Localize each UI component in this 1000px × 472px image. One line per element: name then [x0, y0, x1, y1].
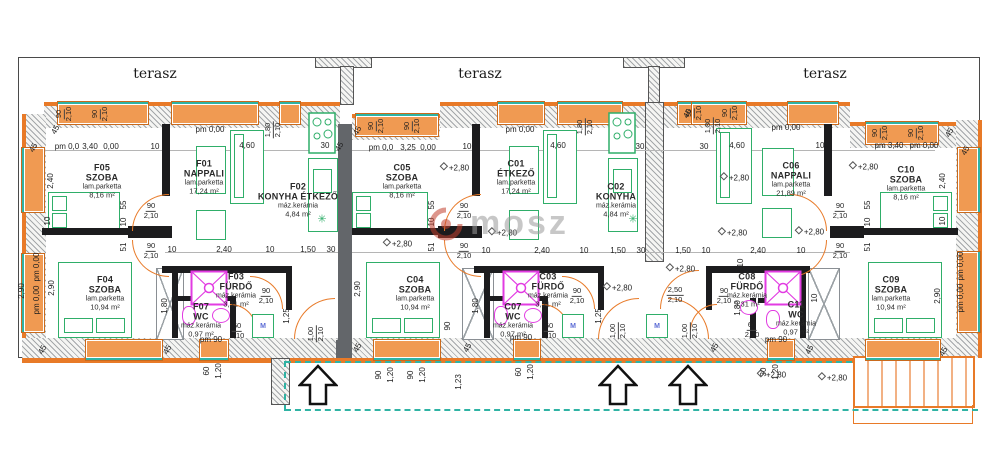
- dim-fraction: 1,002,10: [681, 323, 699, 340]
- window: [514, 340, 540, 360]
- party-wall: [338, 124, 352, 358]
- dim-label: 0,00: [103, 143, 119, 151]
- room-finish: máz.kerámia: [596, 203, 636, 210]
- dim-bottom: 2,10: [457, 252, 472, 261]
- coffee-table: [196, 210, 226, 240]
- dim-fraction: 1,802,10: [576, 119, 594, 136]
- chimney-stem: [648, 66, 660, 105]
- walkway-edge: [285, 409, 978, 411]
- room-code: C09: [872, 275, 911, 285]
- room-label-c11: C11WCmáz.kerámia0,97 m²: [776, 300, 816, 337]
- entrance-arrow-icon: [598, 364, 638, 406]
- dim-fraction: 602,10: [230, 322, 245, 340]
- room-code: C04: [396, 275, 435, 285]
- dim-label: 2,40: [939, 173, 947, 189]
- dim-fraction: 902,10: [457, 242, 472, 260]
- dim-label: pm 0,00: [33, 286, 41, 315]
- bed-pillow: [96, 318, 125, 333]
- walkway-edge: [284, 361, 288, 411]
- dim-fraction: 2,502,10: [667, 286, 684, 304]
- dim-label: 10: [939, 217, 947, 226]
- partition-wall: [162, 124, 170, 196]
- bed-pillow: [906, 318, 935, 333]
- dim-fraction: 902,10: [833, 202, 848, 220]
- room-area: 4,84 m²: [258, 210, 338, 219]
- room-finish: máz.kerámia: [181, 323, 221, 330]
- room-code: F02: [258, 182, 338, 192]
- dim-bottom: 2,10: [881, 126, 890, 141]
- dim-fraction: 602,10: [745, 321, 760, 339]
- dim-label: pm 0,00: [910, 142, 939, 150]
- dim-label: pm 0,00: [957, 252, 965, 281]
- washing-machine-label: M: [260, 323, 266, 330]
- door-jamb: [830, 226, 864, 238]
- window: [86, 340, 162, 360]
- dim-fraction: 1,002,10: [307, 326, 325, 343]
- dim-fraction: 902,10: [144, 242, 159, 260]
- partition-wall: [824, 124, 832, 196]
- dim-bottom: 2,10: [695, 106, 704, 121]
- dim-label: 10: [864, 218, 872, 227]
- dim-label: 2,90: [934, 288, 942, 304]
- partition-wall: [472, 124, 480, 196]
- coffee-table: [762, 208, 792, 238]
- walkway-edge: [285, 361, 852, 363]
- party-wall-hatched: [645, 102, 664, 262]
- dim-label: 10: [120, 218, 128, 227]
- level-mark: +2,80: [719, 228, 747, 237]
- dim-label: 10: [811, 294, 819, 303]
- dim-label: 60: [515, 368, 523, 377]
- dim-label: 3,25: [400, 144, 416, 152]
- level-mark: +2,80: [721, 173, 749, 182]
- room-name: SZOBA: [396, 285, 435, 295]
- terrace-label: terasz: [803, 66, 847, 82]
- entrance-arrow-icon: [298, 364, 338, 406]
- dim-label: 1,20: [387, 367, 395, 383]
- dim-label: 1,20: [419, 367, 427, 383]
- floor-plan-canvas: ✳ ✳ M M M mosz teraszteras: [0, 0, 1000, 472]
- dim-label: 4,60: [239, 142, 255, 150]
- sofa: [716, 128, 752, 204]
- room-area: 8,16 m²: [83, 191, 122, 200]
- dim-fraction: 902,10: [403, 119, 421, 134]
- dim-label: 1,50: [610, 247, 626, 255]
- dim-bottom: 2,10: [570, 297, 585, 306]
- level-mark: +2,80: [441, 163, 469, 172]
- room-finish: lam.parketta: [396, 296, 435, 303]
- washing-machine-label: M: [570, 323, 576, 330]
- dim-fraction: 902,10: [457, 202, 472, 220]
- dim-label: 10: [428, 218, 436, 227]
- dim-bottom: 2,10: [714, 119, 723, 134]
- room-label-c05: C05SZOBAlam.parketta8,16 m²: [383, 163, 422, 200]
- bed-pillow: [933, 196, 948, 211]
- dim-label: 1,50: [300, 246, 316, 254]
- dim-fraction: 1,802,10: [704, 118, 722, 135]
- dim-label: 4,60: [729, 142, 745, 150]
- dim-bottom: 2,10: [731, 106, 740, 121]
- dim-label: 1,80: [161, 298, 169, 314]
- room-area: 8,16 m²: [887, 193, 926, 202]
- room-finish: lam.parketta: [887, 186, 926, 193]
- dim-label: 51: [120, 243, 128, 252]
- room-label-f05: F05SZOBAlam.parketta8,16 m²: [83, 163, 122, 200]
- level-mark: +2,80: [758, 370, 786, 379]
- dim-label: 51: [864, 243, 872, 252]
- room-label-c06: C06NAPPALIlam.parketta21,89 m²: [771, 161, 811, 198]
- chimney-stem: [340, 66, 354, 105]
- dim-bottom: 2,10: [717, 297, 732, 306]
- dim-label: pm 90: [765, 336, 787, 344]
- dim-label: 2,40: [750, 247, 766, 255]
- dim-label: 1,20: [527, 364, 535, 380]
- partition-wall: [352, 228, 440, 235]
- dim-bottom: 2,10: [317, 327, 326, 342]
- dim-label: 10: [580, 247, 589, 255]
- dim-label: pm 0,00: [506, 126, 535, 134]
- dim-bottom: 2,10: [542, 332, 557, 341]
- dim-label: pm 0,00: [196, 126, 225, 134]
- room-name: NAPPALI: [184, 169, 224, 179]
- bed-pillow: [64, 318, 93, 333]
- room-name: KONYHA ÉTKEZŐ: [258, 192, 338, 202]
- room-label-c10: C10SZOBAlam.parketta8,16 m²: [887, 165, 926, 202]
- dim-bottom: 2,10: [65, 107, 74, 122]
- dim-label: 4,60: [550, 142, 566, 150]
- level-mark: +2,80: [489, 228, 517, 237]
- room-finish: lam.parketta: [497, 180, 536, 187]
- washing-machine: M: [646, 314, 668, 338]
- terrace-label: terasz: [458, 66, 502, 82]
- dim-label: 1,80: [734, 300, 742, 316]
- dim-label: 90: [444, 322, 452, 331]
- room-label-f03: F03FÜRDŐmáz.kerámia3,31 m²: [216, 272, 256, 309]
- dim-label: pm 0,0: [55, 143, 79, 151]
- dim-label: 10: [482, 247, 491, 255]
- room-name: FÜRDŐ: [528, 282, 568, 292]
- dim-bottom: 2,10: [457, 212, 472, 221]
- staircase-landing: [853, 405, 973, 424]
- room-name: SZOBA: [872, 285, 911, 295]
- bed-pillow: [874, 318, 903, 333]
- dim-fraction: 1,802,10: [264, 122, 282, 139]
- room-area: 3,31 m²: [216, 300, 256, 309]
- dim-label: 90: [375, 371, 383, 380]
- room-finish: máz.kerámia: [258, 203, 338, 210]
- dim-label: 2,90: [48, 280, 56, 296]
- room-finish: lam.parketta: [872, 296, 911, 303]
- dim-fraction: 902,10: [259, 287, 274, 305]
- room-code: F03: [216, 272, 256, 282]
- dim-bottom: 2,10: [259, 297, 274, 306]
- dim-label: 0,00: [420, 144, 436, 152]
- dim-label: 10: [702, 247, 711, 255]
- room-code: C02: [596, 182, 636, 192]
- dim-label: 55: [864, 201, 872, 210]
- room-label-f04: F04SZOBAlam.parketta10,94 m²: [86, 275, 125, 312]
- room-code: C10: [887, 165, 926, 175]
- dim-label: 30: [700, 143, 709, 151]
- dim-label: pm 0,00: [33, 253, 41, 282]
- dim-label: 10: [737, 259, 745, 268]
- room-label-f01: F01NAPPALIlam.parketta17,24 m²: [184, 159, 224, 196]
- room-code: F05: [83, 163, 122, 173]
- room-finish: lam.parketta: [86, 296, 125, 303]
- dim-bottom: 2,10: [619, 324, 628, 339]
- level-mark: +2,80: [384, 239, 412, 248]
- dim-label: 55: [120, 201, 128, 210]
- room-name: KONYHA: [596, 192, 636, 202]
- dim-fraction: 902,10: [721, 106, 739, 121]
- dim-label: 55: [428, 201, 436, 210]
- dim-label: 1,20: [215, 363, 223, 379]
- dim-fraction: 1,002,10: [609, 323, 627, 340]
- dim-bottom: 2,10: [144, 252, 159, 261]
- dim-bottom: 2,10: [745, 331, 760, 340]
- dim-label: 10: [266, 246, 275, 254]
- room-label-c04: C04SZOBAlam.parketta10,94 m²: [396, 275, 435, 312]
- dim-label: 1,25: [283, 308, 291, 324]
- dim-label: 1,50: [675, 247, 691, 255]
- washing-machine-label: M: [654, 323, 660, 330]
- dim-label: pm 3,40: [875, 142, 904, 150]
- dim-fraction: 902,10: [91, 107, 109, 122]
- room-name: SZOBA: [383, 173, 422, 183]
- room-finish: máz.kerámia: [528, 293, 568, 300]
- dim-label: 30: [327, 246, 336, 254]
- dim-label: 10: [151, 143, 160, 151]
- window: [788, 102, 838, 124]
- bed-pillow: [356, 196, 371, 211]
- room-finish: lam.parketta: [184, 180, 224, 187]
- dim-fraction: 602,10: [542, 322, 557, 340]
- staircase: [853, 356, 975, 408]
- room-label-c09: C09SZOBAlam.parketta10,94 m²: [872, 275, 911, 312]
- dim-bottom: 2,10: [274, 123, 283, 138]
- dim-label: 2,90: [18, 283, 26, 299]
- dim-fraction: 902,10: [367, 119, 385, 134]
- dim-bottom: 2,10: [377, 119, 386, 134]
- room-code: C01: [497, 159, 536, 169]
- room-code: C07: [493, 302, 533, 312]
- room-name: WC: [493, 312, 533, 322]
- level-mark: +2,80: [850, 162, 878, 171]
- partition-wall: [42, 228, 128, 235]
- bathroom-wall: [286, 266, 292, 310]
- room-area: 8,16 m²: [383, 191, 422, 200]
- dim-label: pm 0,00: [772, 124, 801, 132]
- bed-pillow: [372, 318, 401, 333]
- room-finish: máz.kerámia: [216, 293, 256, 300]
- dim-label: 10: [44, 217, 52, 226]
- dim-bottom: 2,10: [833, 252, 848, 261]
- dim-label: 30: [637, 247, 646, 255]
- room-label-f07: F07WCmáz.kerámia0,97 m²: [181, 302, 221, 339]
- room-label-c03: C03FÜRDŐmáz.kerámia3,31 m²: [528, 272, 568, 309]
- dimension-line: [45, 150, 935, 151]
- room-code: F04: [86, 275, 125, 285]
- room-finish: máz.kerámia: [493, 323, 533, 330]
- level-mark: +2,80: [604, 283, 632, 292]
- bed-pillow: [356, 213, 371, 228]
- dim-label: 1,80: [472, 298, 480, 314]
- room-code: C06: [771, 161, 811, 171]
- dim-bottom: 2,10: [413, 119, 422, 134]
- dim-label: 60: [203, 367, 211, 376]
- room-name: NAPPALI: [771, 171, 811, 181]
- window: [22, 148, 44, 212]
- dim-label: pm 90: [200, 336, 222, 344]
- dim-bottom: 2,10: [917, 126, 926, 141]
- dim-label: 2,40: [534, 247, 550, 255]
- terrace-label: terasz: [133, 66, 177, 82]
- dim-fraction: 902,10: [144, 202, 159, 220]
- dim-bottom: 2,10: [668, 296, 683, 305]
- room-finish: máz.kerámia: [776, 321, 816, 328]
- dim-label: pm 90: [510, 334, 532, 342]
- dim-bottom: 2,10: [101, 107, 110, 122]
- washing-machine: M: [252, 314, 274, 338]
- dim-label: 1,23: [455, 374, 463, 390]
- room-name: WC: [776, 310, 816, 320]
- dim-bottom: 2,10: [691, 324, 700, 339]
- bathroom-wall: [484, 273, 490, 338]
- room-code: F07: [181, 302, 221, 312]
- dim-fraction: 902,10: [833, 242, 848, 260]
- dim-label: 10: [463, 143, 472, 151]
- dim-label: 30: [321, 142, 330, 150]
- room-area: 21,89 m²: [771, 189, 811, 198]
- room-code: C08: [727, 272, 767, 282]
- room-code: C05: [383, 163, 422, 173]
- dim-label: 51: [428, 243, 436, 252]
- dim-bottom: 2,10: [586, 120, 595, 135]
- room-finish: lam.parketta: [383, 184, 422, 191]
- dim-bottom: 2,10: [144, 212, 159, 221]
- entrance-arrow-icon: [668, 364, 708, 406]
- bed-pillow: [52, 196, 67, 211]
- window: [172, 102, 258, 124]
- room-area: 10,94 m²: [396, 303, 435, 312]
- room-area: 17,24 m²: [184, 187, 224, 196]
- room-name: SZOBA: [83, 173, 122, 183]
- terrace-door: [498, 102, 544, 124]
- dim-fraction: 902,10: [570, 287, 585, 305]
- room-name: ÉTKEZŐ: [497, 169, 536, 179]
- party-wall-foot: [336, 340, 352, 358]
- dim-fraction: 902,10: [907, 126, 925, 141]
- room-code: F01: [184, 159, 224, 169]
- dim-label: 2,40: [216, 246, 232, 254]
- room-finish: máz.kerámia: [727, 293, 767, 300]
- room-area: 4,84 m²: [596, 210, 636, 219]
- room-label-c01: C01ÉTKEZŐlam.parketta17,24 m²: [497, 159, 536, 196]
- dim-bottom: 2,10: [230, 332, 245, 341]
- room-area: 10,94 m²: [872, 303, 911, 312]
- room-name: FÜRDŐ: [727, 282, 767, 292]
- dim-label: 10: [816, 142, 825, 150]
- room-name: FÜRDŐ: [216, 282, 256, 292]
- bathroom-wall: [172, 273, 178, 338]
- dim-label: pm 0,0: [369, 144, 393, 152]
- stove-icon: [608, 112, 636, 154]
- room-label-c02: C02KONYHAmáz.kerámia4,84 m²: [596, 182, 636, 219]
- dim-label: 90: [407, 371, 415, 380]
- dim-fraction: 902,10: [717, 287, 732, 305]
- dim-fraction: 902,10: [871, 126, 889, 141]
- level-mark: +2,80: [819, 373, 847, 382]
- bathroom-wall: [706, 266, 712, 310]
- bed-pillow: [404, 318, 433, 333]
- window: [866, 340, 940, 360]
- washing-machine: M: [562, 314, 584, 338]
- dim-label: 3,40: [82, 143, 98, 151]
- room-area: 3,31 m²: [528, 300, 568, 309]
- room-finish: lam.parketta: [771, 182, 811, 189]
- room-name: WC: [181, 312, 221, 322]
- room-code: C03: [528, 272, 568, 282]
- room-label-f02: F02KONYHA ÉTKEZŐmáz.kerámia4,84 m²: [258, 182, 338, 219]
- dim-label: 2,40: [47, 173, 55, 189]
- level-mark: +2,80: [667, 264, 695, 273]
- dim-bottom: 2,10: [833, 212, 848, 221]
- room-area: 10,94 m²: [86, 303, 125, 312]
- dim-label: pm 0,00: [957, 284, 965, 313]
- level-mark: +2,80: [796, 227, 824, 236]
- dim-label: 2,90: [354, 281, 362, 297]
- dim-fraction: 902,10: [55, 107, 73, 122]
- dim-label: 1,25: [595, 308, 603, 324]
- window: [280, 102, 300, 124]
- window: [958, 148, 980, 212]
- room-finish: lam.parketta: [83, 184, 122, 191]
- room-name: SZOBA: [887, 175, 926, 185]
- dim-label: 10: [797, 247, 806, 255]
- room-name: SZOBA: [86, 285, 125, 295]
- bed-pillow: [52, 213, 67, 228]
- dim-label: 30: [636, 143, 645, 151]
- window: [374, 340, 440, 360]
- dim-label: 10: [168, 246, 177, 254]
- room-area: 17,24 m²: [497, 187, 536, 196]
- dim-fraction: 902,10: [685, 106, 703, 121]
